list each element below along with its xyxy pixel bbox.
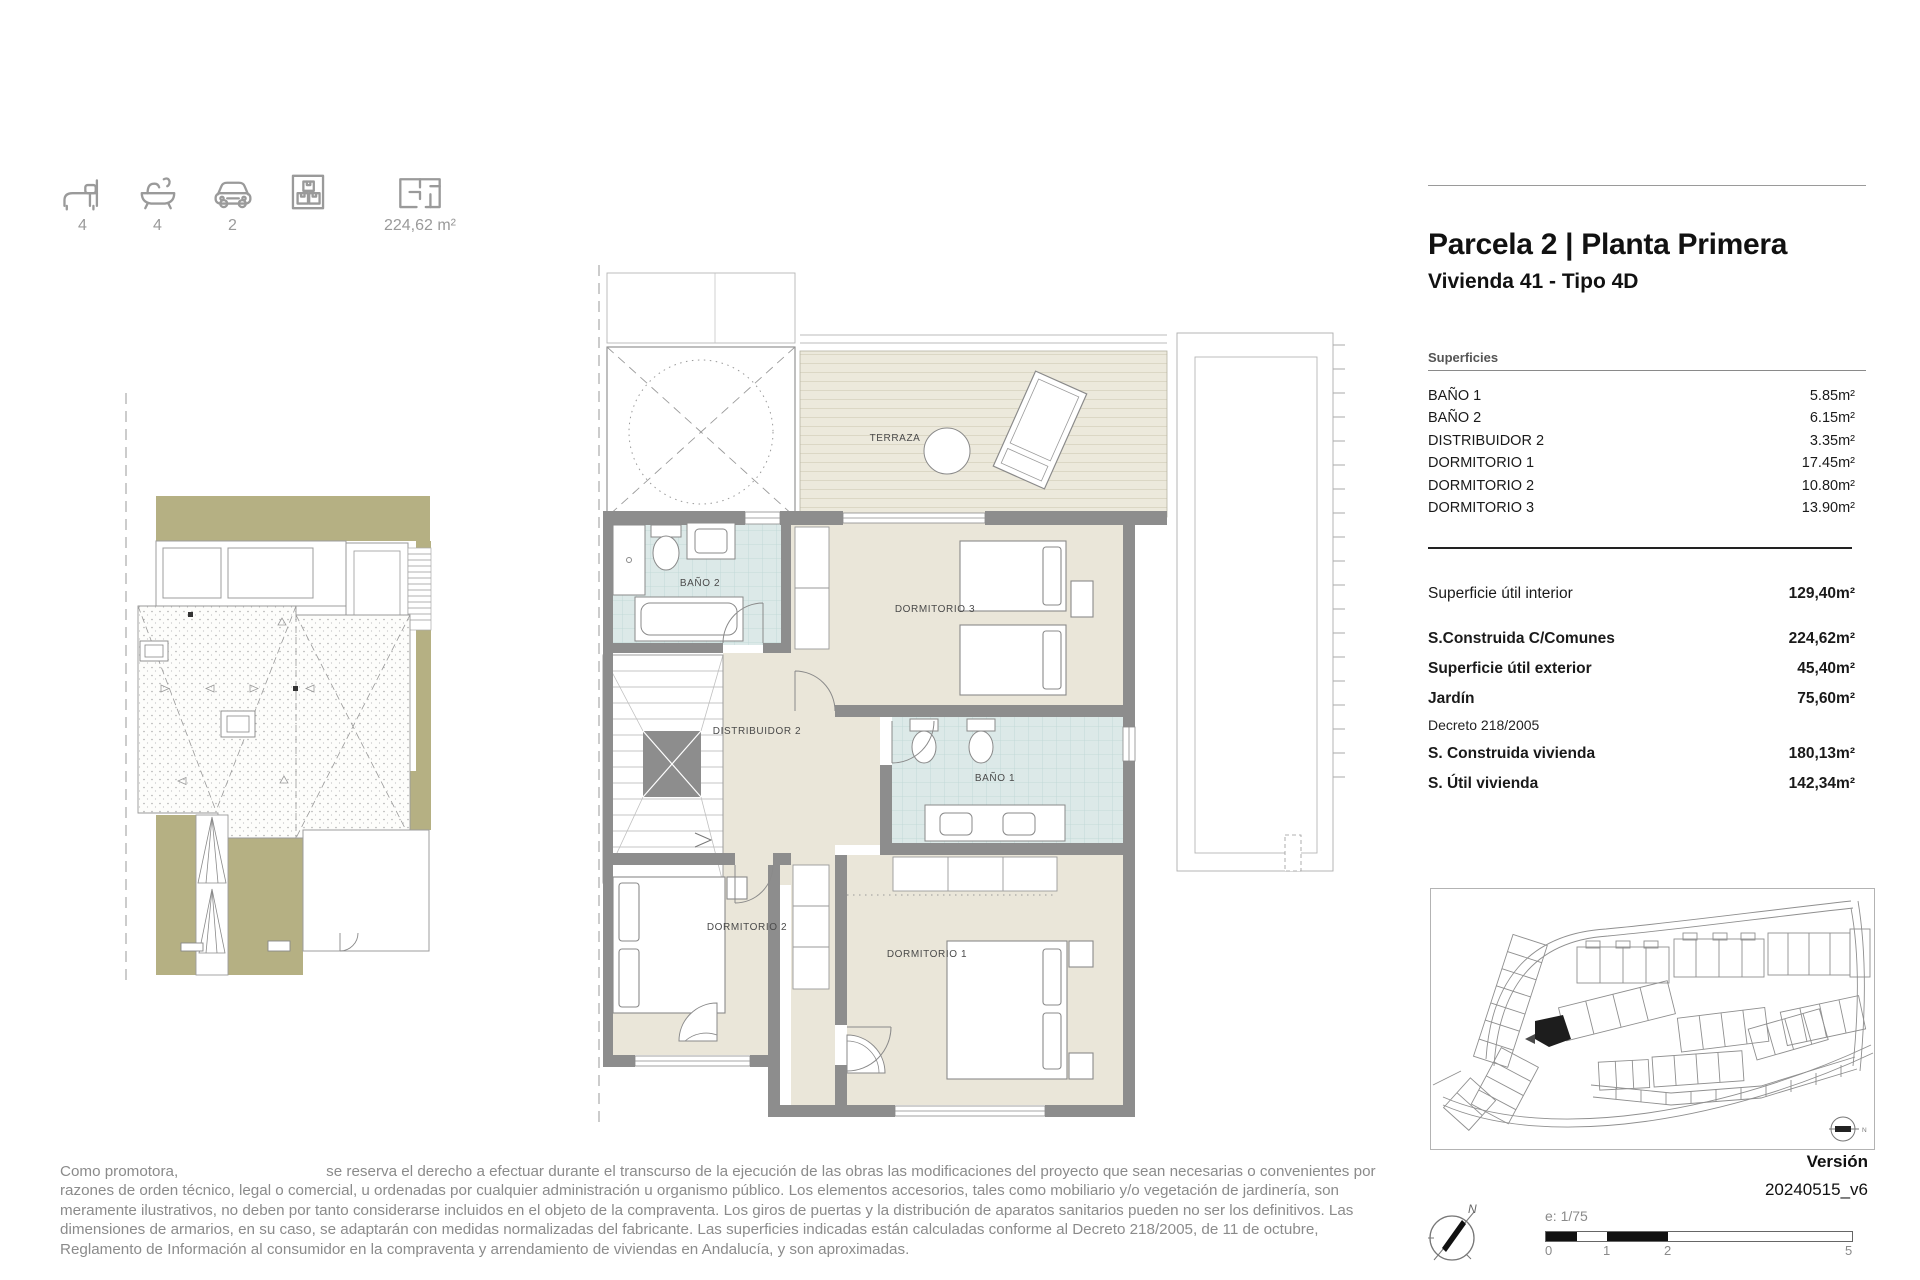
label-bano1: BAÑO 1 bbox=[975, 771, 1015, 784]
summary-value: 45,40m² bbox=[1797, 660, 1855, 678]
label-terraza: TERRAZA bbox=[870, 433, 921, 444]
staircase bbox=[603, 655, 723, 883]
row-label: DORMITORIO 2 bbox=[1428, 475, 1534, 497]
bathrooms-cell: 4 bbox=[120, 170, 195, 235]
summary-label: S. Construida vivienda bbox=[1428, 745, 1595, 763]
area-cell: 224,62 m² bbox=[345, 170, 495, 235]
lower-terraces bbox=[156, 541, 346, 606]
compass-north-label: N bbox=[1468, 1202, 1477, 1216]
page-title: Parcela 2 | Planta Primera bbox=[1428, 228, 1868, 262]
summary-block: Superficie útil interior 129,40m² S.Cons… bbox=[1428, 585, 1855, 793]
panel-top-rule bbox=[1428, 185, 1866, 186]
summary-row: S. Útil vivienda 142,34m² bbox=[1428, 775, 1855, 793]
parking-count: 2 bbox=[228, 217, 237, 235]
table-row: DISTRIBUIDOR 2 3.35m² bbox=[1428, 430, 1855, 452]
right-deck-zone bbox=[1177, 333, 1345, 871]
roads bbox=[1433, 901, 1873, 1127]
disclaimer-prefix: Como promotora, bbox=[60, 1163, 178, 1180]
summary-value: 180,13m² bbox=[1789, 745, 1855, 763]
summary-value: 129,40m² bbox=[1789, 585, 1855, 603]
summary-value: 142,34m² bbox=[1789, 775, 1855, 793]
terraza-zone bbox=[800, 335, 1167, 517]
row-label: DORMITORIO 1 bbox=[1428, 452, 1534, 474]
summary-row: Superficie útil exterior 45,40m² bbox=[1428, 660, 1855, 678]
summary-row: Jardín 75,60m² bbox=[1428, 690, 1855, 708]
row-label: BAÑO 1 bbox=[1428, 385, 1481, 407]
scale-tick: 5 bbox=[1845, 1243, 1852, 1258]
label-bano2: BAÑO 2 bbox=[680, 576, 720, 589]
row-value: 3.35m² bbox=[1810, 430, 1855, 452]
scale-tick: 0 bbox=[1545, 1243, 1552, 1258]
floorplan-icon bbox=[395, 170, 445, 214]
version-label: Versión bbox=[1545, 1152, 1868, 1172]
scale-ticks: 0 1 2 5 bbox=[1545, 1242, 1855, 1258]
built-area-value: 224,62 m² bbox=[384, 217, 456, 235]
summary-label: Jardín bbox=[1428, 690, 1475, 708]
car-icon bbox=[211, 170, 255, 214]
row-value: 5.85m² bbox=[1810, 385, 1855, 407]
row-value: 17.45m² bbox=[1802, 452, 1855, 474]
roof bbox=[138, 606, 410, 838]
scale-segment bbox=[1607, 1232, 1668, 1241]
legal-disclaimer: Como promotora,se reserva el derecho a e… bbox=[60, 1162, 1400, 1259]
map-north-label: N bbox=[1862, 1127, 1867, 1134]
summary-label: S.Construida C/Comunes bbox=[1428, 630, 1615, 648]
label-distribuidor2: DISTRIBUIDOR 2 bbox=[713, 726, 801, 737]
bathrooms-count: 4 bbox=[153, 217, 162, 235]
storage-cell bbox=[270, 170, 345, 214]
highlighted-unit bbox=[1535, 1015, 1571, 1047]
summary-row: Superficie útil interior 129,40m² bbox=[1428, 585, 1855, 603]
label-dormitorio1: DORMITORIO 1 bbox=[887, 949, 967, 960]
house-blocks bbox=[1444, 929, 1870, 1130]
site-roof-plan bbox=[118, 393, 488, 983]
site-location-map: N bbox=[1430, 888, 1875, 1150]
summary-value: 224,62m² bbox=[1789, 630, 1855, 648]
double-height-void bbox=[607, 273, 795, 517]
table-row: DORMITORIO 3 13.90m² bbox=[1428, 497, 1855, 519]
terrace-table bbox=[924, 428, 970, 474]
disclaimer-body: se reserva el derecho a efectuar durante… bbox=[60, 1163, 1376, 1258]
page-subtitle: Vivienda 41 - Tipo 4D bbox=[1428, 270, 1868, 294]
summary-value: 75,60m² bbox=[1797, 690, 1855, 708]
main-floor-plan: TERRAZA BAÑO 2 DORMITORIO 3 DISTRIBUIDOR… bbox=[595, 265, 1355, 1127]
version-block: Versión 20240515_v6 bbox=[1545, 1152, 1868, 1200]
table-row: DORMITORIO 1 17.45m² bbox=[1428, 452, 1855, 474]
map-compass-icon: N bbox=[1829, 1117, 1867, 1141]
row-label: DORMITORIO 3 bbox=[1428, 497, 1534, 519]
summary-row: S.Construida C/Comunes 224,62m² bbox=[1428, 630, 1855, 648]
scale-tick: 1 bbox=[1603, 1243, 1610, 1258]
parking-cell: 2 bbox=[195, 170, 270, 235]
label-dormitorio2: DORMITORIO 2 bbox=[707, 922, 787, 933]
table-row: BAÑO 2 6.15m² bbox=[1428, 407, 1855, 429]
scale-bar bbox=[1545, 1231, 1853, 1242]
decreto-note: Decreto 218/2005 bbox=[1428, 717, 1855, 733]
row-value: 6.15m² bbox=[1810, 407, 1855, 429]
scale-tick: 2 bbox=[1664, 1243, 1671, 1258]
unit-pointer-arrow bbox=[1525, 1034, 1535, 1044]
steps-hatch bbox=[408, 548, 431, 630]
scale-segment bbox=[1546, 1232, 1577, 1241]
version-value: 20240515_v6 bbox=[1545, 1180, 1868, 1200]
label-dormitorio3: DORMITORIO 3 bbox=[895, 604, 975, 615]
summary-row: S. Construida vivienda 180,13m² bbox=[1428, 745, 1855, 763]
site-map-drawing: N bbox=[1431, 889, 1874, 1149]
table-row: DORMITORIO 2 10.80m² bbox=[1428, 475, 1855, 497]
storage-icon bbox=[286, 170, 330, 214]
north-compass-icon: N bbox=[1422, 1198, 1502, 1278]
row-value: 13.90m² bbox=[1802, 497, 1855, 519]
superficies-heading: Superficies bbox=[1428, 350, 1866, 371]
amenity-icon-row: 4 4 2 bbox=[45, 170, 495, 235]
row-label: DISTRIBUIDOR 2 bbox=[1428, 430, 1544, 452]
summary-label: S. Útil vivienda bbox=[1428, 775, 1538, 793]
bedrooms-count: 4 bbox=[78, 217, 87, 235]
table-row: BAÑO 1 5.85m² bbox=[1428, 385, 1855, 407]
scale-label: e: 1/75 bbox=[1545, 1208, 1865, 1224]
superficies-table: BAÑO 1 5.85m² BAÑO 2 6.15m² DISTRIBUIDOR… bbox=[1428, 385, 1855, 519]
row-label: BAÑO 2 bbox=[1428, 407, 1481, 429]
row-value: 10.80m² bbox=[1802, 475, 1855, 497]
bed-icon bbox=[61, 170, 105, 214]
summary-divider bbox=[1428, 547, 1852, 549]
summary-label: Superficie útil interior bbox=[1428, 585, 1573, 603]
plan-sheet: 4 4 2 bbox=[0, 0, 1920, 1280]
scale-bar-area: e: 1/75 0 1 2 5 bbox=[1545, 1208, 1865, 1258]
summary-label: Superficie útil exterior bbox=[1428, 660, 1592, 678]
bathtub-icon bbox=[136, 170, 180, 214]
bedrooms-cell: 4 bbox=[45, 170, 120, 235]
